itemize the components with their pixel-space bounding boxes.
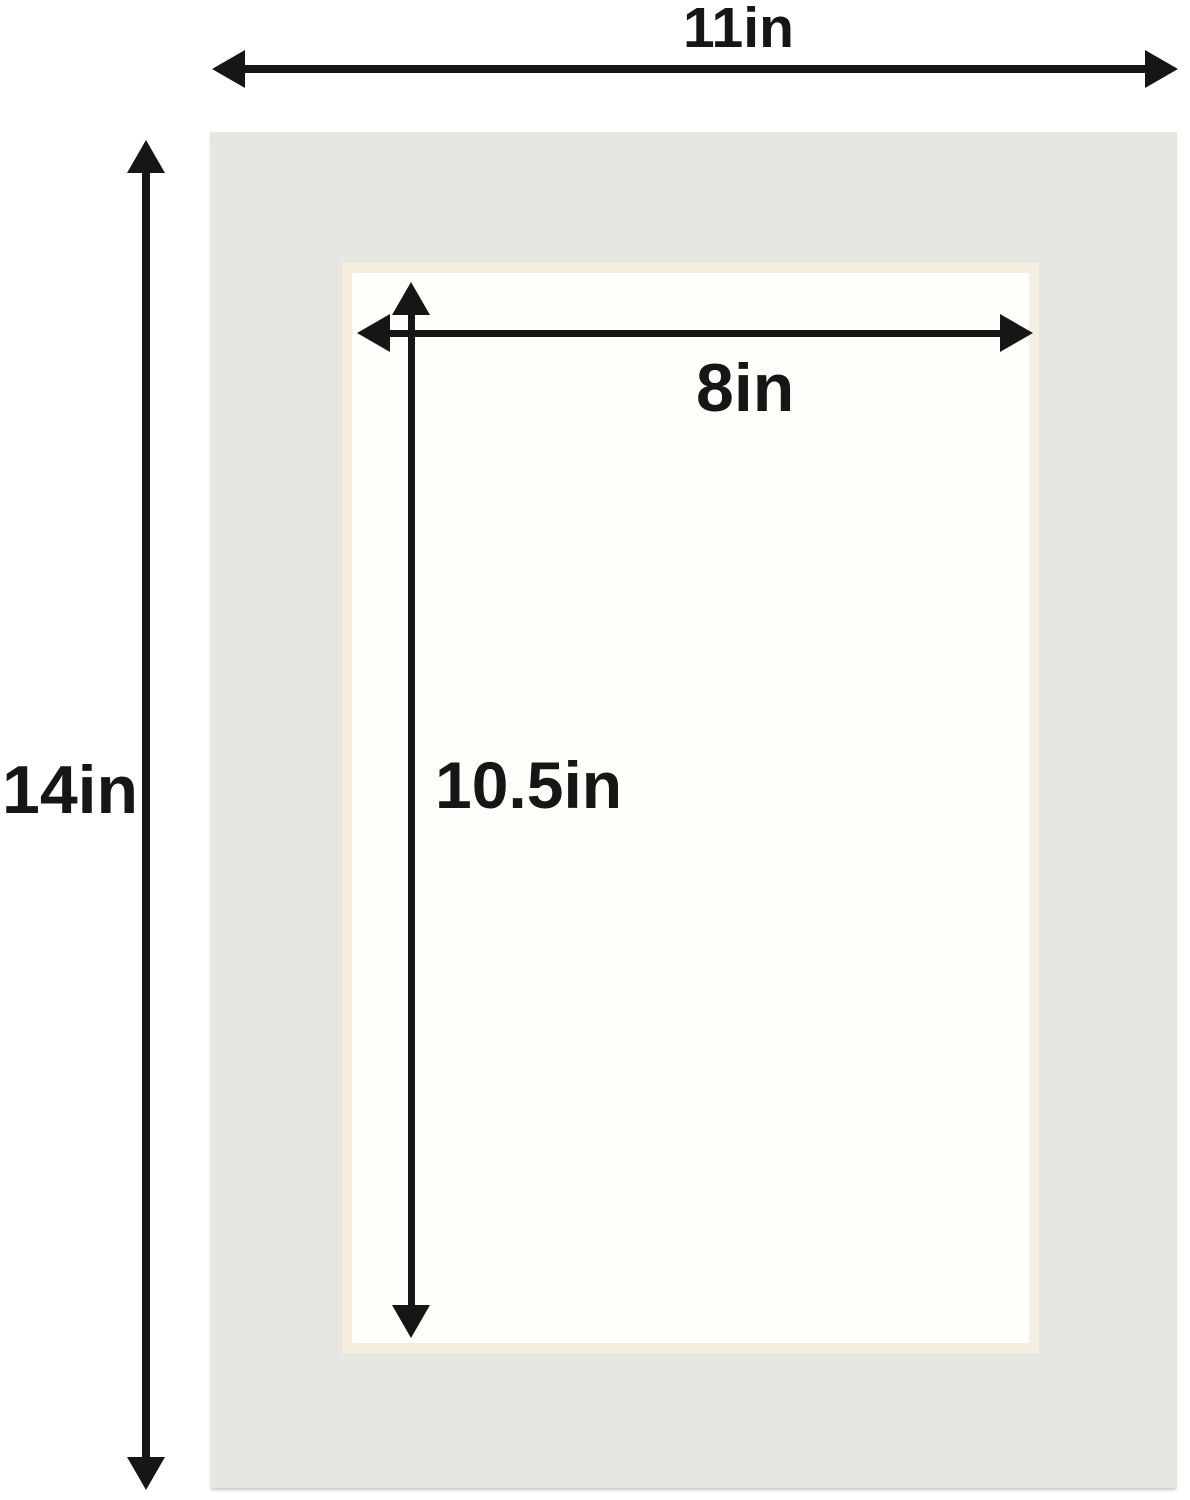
arrow-up-icon bbox=[392, 282, 430, 315]
outer-height-label: 14in bbox=[2, 756, 138, 824]
opening-width-dimension-line bbox=[383, 330, 1008, 337]
diagram-canvas: 11in 14in 8in 10.5in bbox=[0, 0, 1190, 1500]
opening-width-label: 8in bbox=[696, 354, 794, 422]
outer-width-label: 11in bbox=[683, 0, 794, 57]
arrow-right-icon bbox=[1000, 314, 1033, 352]
arrow-left-icon bbox=[357, 314, 390, 352]
arrow-down-icon bbox=[392, 1305, 430, 1338]
opening-height-dimension-line bbox=[408, 308, 415, 1312]
outer-height-dimension-line bbox=[142, 168, 150, 1460]
arrow-down-icon bbox=[127, 1457, 165, 1490]
outer-width-dimension-line bbox=[235, 65, 1155, 73]
opening-height-label: 10.5in bbox=[435, 752, 622, 818]
arrow-left-icon bbox=[212, 50, 245, 88]
arrow-up-icon bbox=[127, 140, 165, 173]
arrow-right-icon bbox=[1145, 50, 1178, 88]
